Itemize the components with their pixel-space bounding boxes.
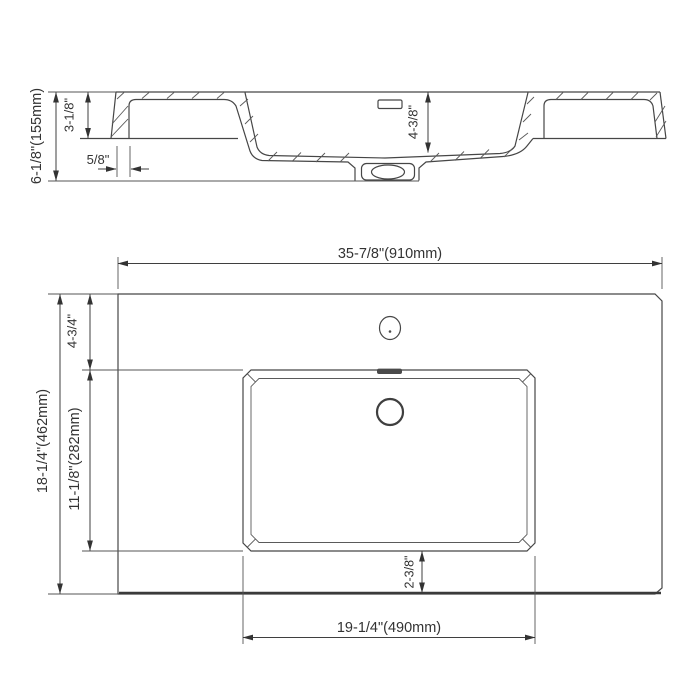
dim-label-basin-to-front-edge: 2-3/8": [402, 556, 416, 589]
dim-label-overall-width: 35-7/8"(910mm): [338, 246, 442, 262]
extension-line: [117, 146, 130, 177]
section-view: 6-1/8"(155mm) 3-1/8" 5/8" 4-3/8": [29, 88, 666, 184]
drain-fitting-body: [362, 164, 415, 181]
technical-drawing-page: 6-1/8"(155mm) 3-1/8" 5/8" 4-3/8": [0, 0, 700, 700]
dim-section-rim-to-underside: 3-1/8": [61, 93, 88, 139]
basin-inner-rim: [251, 379, 527, 543]
section-right-end-wall: [660, 92, 666, 139]
dim-label-overall-height: 6-1/8"(155mm): [29, 88, 45, 184]
basin-outer-rim: [243, 370, 535, 551]
vanity-top-dimension-drawing: 6-1/8"(155mm) 3-1/8" 5/8" 4-3/8": [0, 0, 700, 700]
faucet-hole: [380, 317, 401, 340]
section-overflow-slot: [378, 100, 402, 109]
faucet-hole-center-mark: [389, 330, 392, 333]
dim-label-basin-front-back: 11-1/8"(282mm): [67, 407, 83, 510]
plan-view: 35-7/8"(910mm) 18-1/4"(462mm) 4-3/4" 11-…: [35, 246, 662, 644]
section-left-cavity-and-basin-outer-left: [129, 100, 355, 181]
dim-plan-basin-front-back: 11-1/8"(282mm): [67, 370, 243, 551]
dim-label-overall-depth: 18-1/4"(462mm): [35, 389, 51, 493]
dim-plan-basin-width: 19-1/4"(490mm): [243, 556, 535, 644]
overflow-slot: [377, 369, 402, 374]
section-right-cavity: [544, 100, 657, 139]
drain-hole: [377, 399, 403, 425]
drain-fitting-opening: [372, 165, 405, 179]
section-hatching: [111, 93, 666, 163]
dim-plan-overall-width: 35-7/8"(910mm): [118, 246, 662, 289]
section-basin-interior-profile: [245, 93, 528, 159]
dim-label-basin-width: 19-1/4"(490mm): [337, 620, 441, 636]
extension-lines: [82, 370, 243, 551]
extension-lines: [48, 294, 118, 594]
section-left-end-wall: [111, 92, 116, 139]
dim-plan-basin-to-front-edge: 2-3/8": [402, 552, 422, 593]
dim-label-rim-to-underside: 3-1/8": [61, 97, 76, 132]
dim-plan-top-edge-to-basin: 4-3/4": [64, 295, 90, 370]
dim-section-wall-thickness: 5/8": [87, 146, 149, 177]
dim-section-basin-depth: 4-3/8": [405, 93, 428, 153]
dim-label-basin-depth: 4-3/8": [405, 104, 420, 139]
dim-label-top-edge-to-basin: 4-3/4": [64, 313, 79, 348]
dim-label-wall-thickness: 5/8": [87, 152, 110, 167]
